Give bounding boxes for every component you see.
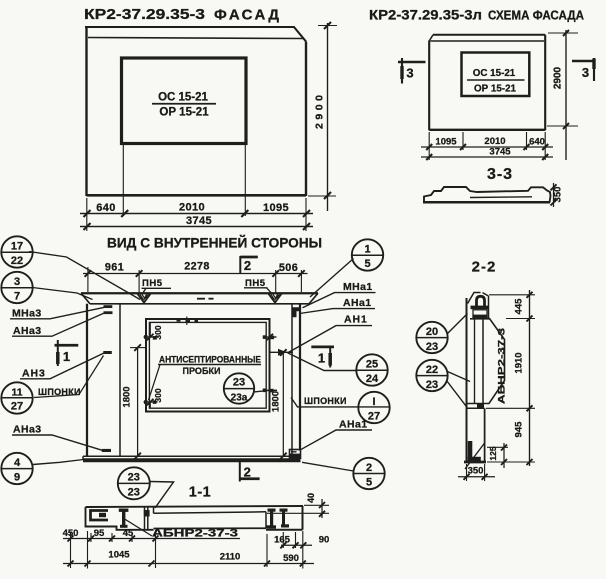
svg-text:МНа3: МНа3 — [12, 308, 42, 320]
svg-text:640: 640 — [96, 202, 116, 214]
svg-text:1910: 1910 — [514, 352, 525, 373]
svg-text:АНа3: АНа3 — [13, 424, 41, 436]
svg-text:165: 165 — [274, 535, 291, 546]
svg-text:ПН5: ПН5 — [142, 278, 163, 289]
svg-text:25: 25 — [366, 359, 378, 371]
svg-text:23а: 23а — [231, 393, 248, 404]
svg-text:2010: 2010 — [179, 202, 205, 214]
svg-text:5: 5 — [366, 476, 372, 488]
svg-text:22: 22 — [426, 364, 438, 376]
svg-text:ОС 15-21: ОС 15-21 — [473, 68, 516, 79]
svg-text:23: 23 — [426, 379, 438, 391]
svg-text:2110: 2110 — [220, 552, 241, 563]
svg-text:300: 300 — [153, 388, 163, 402]
svg-text:3745: 3745 — [489, 147, 511, 158]
svg-text:МНа1: МНа1 — [343, 281, 373, 293]
svg-text:90: 90 — [319, 535, 330, 546]
svg-text:22: 22 — [11, 255, 23, 267]
svg-text:1: 1 — [63, 349, 70, 364]
svg-text:АНа1: АНа1 — [343, 297, 371, 309]
svg-text:20: 20 — [426, 326, 438, 338]
svg-text:506: 506 — [279, 262, 298, 274]
svg-text:5: 5 — [364, 258, 370, 270]
svg-text:640: 640 — [529, 137, 545, 148]
svg-text:ОР 15-21: ОР 15-21 — [474, 84, 516, 95]
svg-text:1800: 1800 — [122, 386, 133, 407]
svg-text:АНа3: АНа3 — [13, 325, 41, 337]
svg-text:I: I — [372, 396, 375, 408]
svg-text:2-2: 2-2 — [472, 259, 497, 276]
svg-text:300: 300 — [153, 325, 163, 339]
svg-text:95: 95 — [94, 528, 105, 539]
svg-text:2: 2 — [244, 465, 251, 480]
svg-text:350: 350 — [553, 187, 564, 203]
svg-text:3: 3 — [14, 276, 20, 288]
svg-text:1-1: 1-1 — [189, 485, 211, 501]
svg-text:ВИД С ВНУТРЕННЕЙ СТОРОНЫ: ВИД С ВНУТРЕННЕЙ СТОРОНЫ — [107, 234, 322, 251]
svg-text:СХЕМА ФАСАДА: СХЕМА ФАСАДА — [488, 9, 584, 23]
svg-text:АНТИСЕПТИРОВАННЫЕ: АНТИСЕПТИРОВАННЫЕ — [159, 355, 261, 365]
svg-text:ОС 15-21: ОС 15-21 — [158, 92, 208, 104]
svg-text:АБНР2-37-3: АБНР2-37-3 — [497, 328, 508, 404]
svg-text:4: 4 — [14, 457, 21, 469]
svg-text:2278: 2278 — [184, 261, 210, 273]
svg-text:1800: 1800 — [271, 391, 282, 412]
svg-text:27: 27 — [11, 401, 23, 413]
svg-text:125: 125 — [488, 446, 498, 460]
svg-text:2: 2 — [366, 462, 372, 474]
svg-text:ФАСАД: ФАСАД — [214, 7, 279, 24]
svg-text:2010: 2010 — [484, 136, 505, 147]
svg-text:АН1: АН1 — [344, 314, 368, 326]
svg-text:961: 961 — [105, 262, 124, 274]
svg-text:40: 40 — [306, 493, 316, 503]
svg-text:3745: 3745 — [186, 215, 212, 227]
svg-text:9: 9 — [14, 471, 20, 483]
svg-text:1095: 1095 — [263, 202, 289, 214]
svg-text:КР2-37.29.35-3: КР2-37.29.35-3 — [84, 6, 205, 23]
svg-text:17: 17 — [11, 241, 23, 253]
svg-text:24: 24 — [366, 373, 379, 385]
svg-text:23: 23 — [128, 472, 140, 484]
svg-text:3-3: 3-3 — [487, 166, 513, 183]
svg-text:1: 1 — [318, 351, 325, 366]
svg-text:ПРОБКИ: ПРОБКИ — [183, 366, 221, 376]
svg-text:945: 945 — [514, 421, 525, 438]
svg-text:3: 3 — [582, 65, 589, 80]
svg-text:445: 445 — [514, 298, 525, 315]
svg-text:23: 23 — [233, 377, 245, 389]
svg-text:АН3: АН3 — [22, 368, 46, 380]
svg-text:АНа1: АНа1 — [339, 419, 367, 431]
svg-text:7: 7 — [14, 290, 20, 302]
svg-text:590: 590 — [283, 553, 299, 564]
svg-text:2900: 2900 — [553, 66, 564, 89]
svg-text:23: 23 — [426, 341, 438, 353]
svg-text:1: 1 — [364, 244, 370, 256]
svg-text:1095: 1095 — [435, 137, 457, 148]
svg-text:КР2-37.29.35-3л: КР2-37.29.35-3л — [369, 8, 482, 23]
svg-text:3: 3 — [406, 66, 413, 81]
svg-text:1045: 1045 — [108, 550, 130, 561]
svg-text:ШПОНКИ: ШПОНКИ — [304, 396, 347, 406]
svg-text:350: 350 — [468, 466, 484, 477]
svg-text:ОР 15-21: ОР 15-21 — [159, 107, 209, 119]
svg-text:2: 2 — [244, 258, 251, 273]
svg-text:11: 11 — [11, 386, 22, 398]
svg-text:23: 23 — [128, 487, 140, 499]
svg-text:АБНР2-37-3: АБНР2-37-3 — [152, 528, 238, 540]
svg-text:27: 27 — [368, 410, 380, 422]
